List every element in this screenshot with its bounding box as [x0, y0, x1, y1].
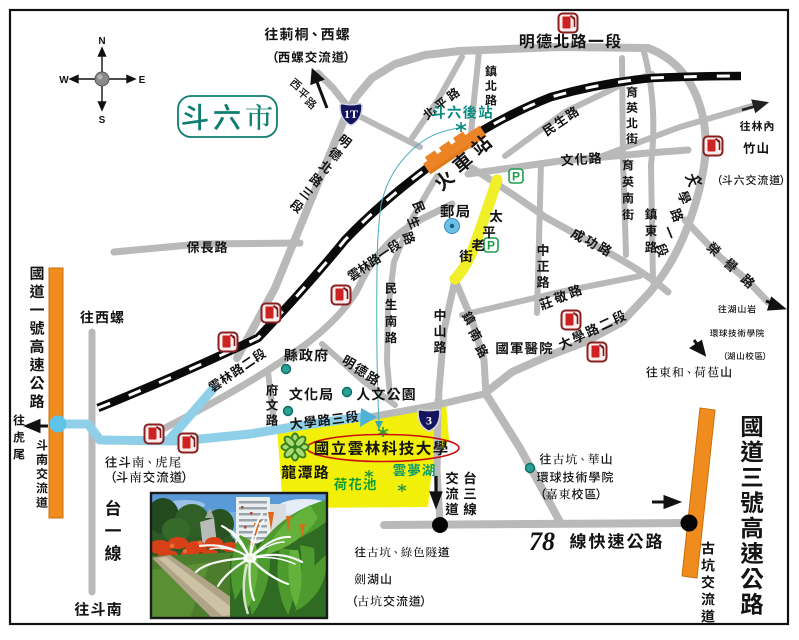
svg-text:E: E [139, 75, 146, 86]
svg-text:1T: 1T [344, 107, 358, 121]
svg-text:3: 3 [426, 414, 432, 428]
svg-text:N: N [98, 36, 105, 47]
svg-text:78: 78 [529, 527, 555, 556]
svg-text:S: S [99, 115, 106, 126]
svg-text:W: W [59, 75, 69, 86]
svg-text:P: P [487, 239, 495, 253]
svg-text:P: P [512, 170, 520, 184]
